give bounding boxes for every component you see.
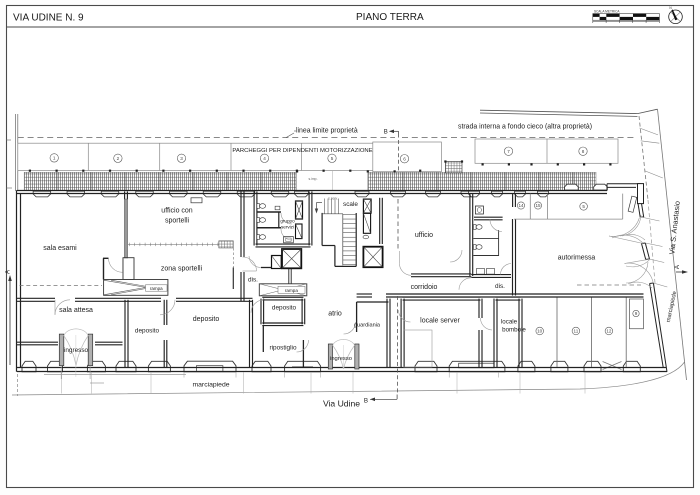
svg-text:bombole: bombole xyxy=(502,327,526,334)
svg-text:corridoio: corridoio xyxy=(411,284,438,291)
svg-text:B: B xyxy=(384,129,388,135)
svg-text:10: 10 xyxy=(537,329,543,334)
svg-text:locale server: locale server xyxy=(420,318,460,325)
svg-text:marciapiede: marciapiede xyxy=(192,382,229,389)
svg-text:ripostiglio: ripostiglio xyxy=(270,345,297,352)
svg-text:2: 2 xyxy=(117,156,120,161)
svg-text:scale: scale xyxy=(343,201,358,208)
svg-text:s.serv.: s.serv. xyxy=(328,197,338,201)
svg-text:guardiania: guardiania xyxy=(354,323,381,329)
svg-text:sala esami: sala esami xyxy=(43,245,77,252)
svg-text:1: 1 xyxy=(53,156,56,161)
svg-text:B: B xyxy=(364,398,368,405)
svg-text:14: 14 xyxy=(518,203,524,208)
svg-text:dis.: dis. xyxy=(495,283,505,290)
svg-text:7: 7 xyxy=(507,149,510,154)
svg-text:rampa: rampa xyxy=(150,286,163,291)
svg-text:SCALA METRICA: SCALA METRICA xyxy=(594,9,620,13)
svg-text:3: 3 xyxy=(180,156,183,161)
svg-text:sportelli: sportelli xyxy=(165,218,190,225)
svg-text:15: 15 xyxy=(535,203,541,208)
svg-text:6: 6 xyxy=(403,156,406,161)
svg-text:5: 5 xyxy=(331,156,334,161)
svg-text:8: 8 xyxy=(582,149,585,154)
svg-text:11: 11 xyxy=(574,329,579,334)
svg-text:A: A xyxy=(6,270,12,274)
svg-text:zona sportelli: zona sportelli xyxy=(161,266,203,273)
svg-text:servizi: servizi xyxy=(281,225,294,230)
svg-text:s.imp.: s.imp. xyxy=(308,177,317,181)
svg-text:dis.: dis. xyxy=(248,277,258,284)
svg-text:rampa: rampa xyxy=(285,288,298,293)
svg-text:ingresso: ingresso xyxy=(64,347,89,354)
svg-text:locale: locale xyxy=(501,319,518,326)
svg-text:atrio: atrio xyxy=(328,311,342,318)
svg-text:gruppo: gruppo xyxy=(280,219,295,224)
svg-text:deposito: deposito xyxy=(135,328,160,335)
svg-text:deposito: deposito xyxy=(272,305,297,312)
svg-text:linea limite proprietà: linea limite proprietà xyxy=(296,128,358,135)
svg-text:sala attesa: sala attesa xyxy=(59,307,93,314)
svg-text:12: 12 xyxy=(606,329,612,334)
svg-text:9: 9 xyxy=(635,311,638,316)
svg-text:PIANO TERRA: PIANO TERRA xyxy=(356,12,424,23)
svg-text:strada interna a fondo cieco (: strada interna a fondo cieco (altra prop… xyxy=(458,123,592,130)
svg-text:deposito: deposito xyxy=(193,316,220,323)
svg-text:PARCHEGGI PER DIPENDENTI MOTOR: PARCHEGGI PER DIPENDENTI MOTORIZZAZIONE xyxy=(232,148,372,154)
svg-text:ufficio con: ufficio con xyxy=(161,208,192,215)
svg-text:VIA UDINE N. 9: VIA UDINE N. 9 xyxy=(13,13,84,24)
svg-text:Via Udine: Via Udine xyxy=(323,399,360,409)
svg-text:4: 4 xyxy=(263,156,266,161)
svg-text:ingresso: ingresso xyxy=(330,356,352,362)
svg-text:autorimessa: autorimessa xyxy=(558,255,596,262)
svg-text:ufficio: ufficio xyxy=(415,232,433,239)
svg-text:5: 5 xyxy=(582,204,585,209)
